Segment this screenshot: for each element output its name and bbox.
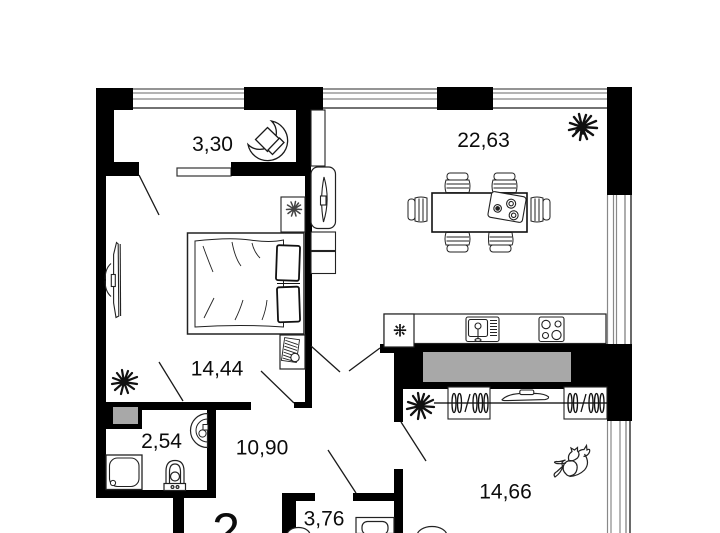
svg-text:3,76: 3,76 bbox=[304, 508, 345, 531]
svg-text:2,54: 2,54 bbox=[141, 430, 182, 453]
svg-text:2: 2 bbox=[212, 503, 240, 533]
svg-text:10,90: 10,90 bbox=[236, 437, 289, 460]
svg-text:3,30: 3,30 bbox=[192, 133, 233, 156]
svg-text:14,44: 14,44 bbox=[191, 358, 244, 381]
svg-text:22,63: 22,63 bbox=[457, 129, 510, 152]
svg-text:14,66: 14,66 bbox=[479, 481, 532, 504]
